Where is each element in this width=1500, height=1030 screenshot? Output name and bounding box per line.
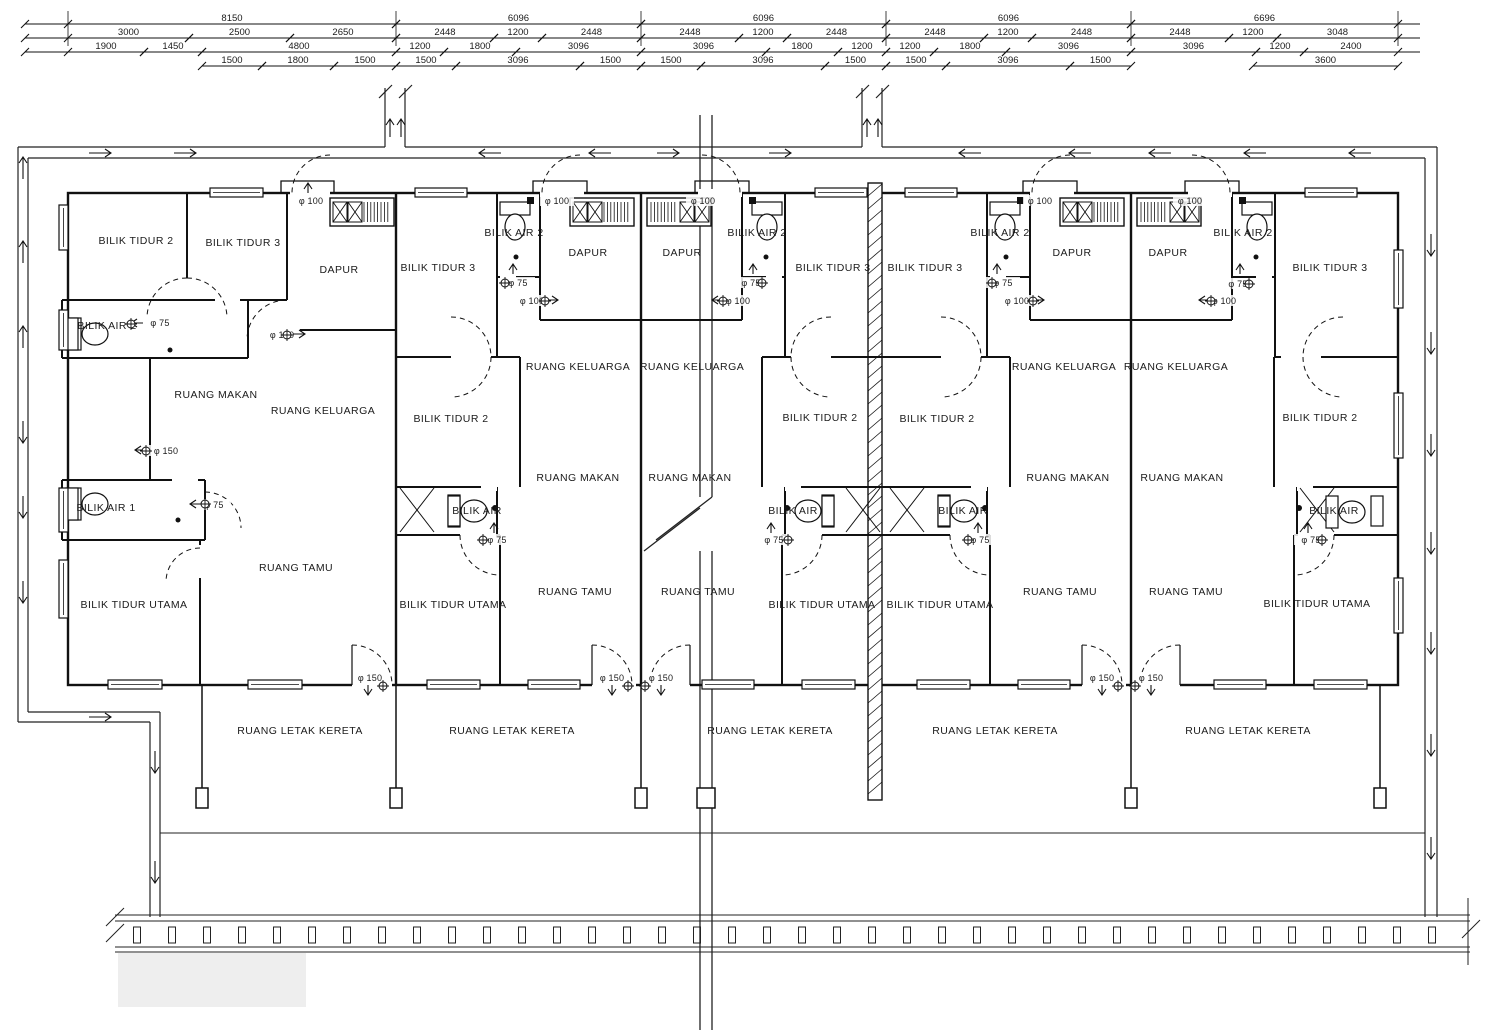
flow-arrow [1244, 149, 1266, 157]
flow-arrow [1069, 149, 1091, 157]
room-label: RUANG MAKAN [536, 472, 619, 484]
floor-plan-drawing: 8150609660966096669630002500265024481200… [0, 0, 1500, 1030]
dimension-label: 1200 [997, 27, 1018, 38]
room-label: DAPUR [1052, 247, 1091, 259]
flow-arrow [1427, 434, 1435, 456]
dimension-label: 1200 [1242, 27, 1263, 38]
dimension-label: 2448 [826, 27, 847, 38]
carpark-label: RUANG LETAK KERETA [237, 725, 363, 737]
scan-watermark-block [118, 953, 306, 1007]
pipe-size-label: φ 100 [545, 196, 569, 206]
room-label: BILIK TIDUR 3 [400, 262, 475, 274]
flow-arrow [174, 149, 196, 157]
room-label: BILIK TIDUR 2 [782, 412, 857, 424]
dimension-label: 1800 [469, 41, 490, 52]
terrace-outer-walls [68, 193, 1398, 685]
flow-arrow [1427, 837, 1435, 859]
dimension-strip: 8150609660966096669630002500265024481200… [21, 11, 1420, 70]
room-label: BILIK AIR 2 [727, 227, 786, 239]
room-label: BILIK AIR [1309, 505, 1359, 517]
hatched-party-wall [868, 183, 882, 800]
pipe-size-label: φ 100 [1028, 196, 1052, 206]
dimension-label: 1200 [899, 41, 920, 52]
dimension-label: 6096 [508, 13, 529, 24]
dimension-label: 8150 [221, 13, 242, 24]
flow-arrow [863, 119, 871, 137]
dimension-label: 6096 [998, 13, 1019, 24]
dimension-label: 4800 [288, 41, 309, 52]
pipe-size-label: φ 100 [299, 196, 323, 206]
flow-arrow [1349, 149, 1371, 157]
flow-arrow [959, 149, 981, 157]
room-label: DAPUR [319, 264, 358, 276]
carpark-label: RUANG LETAK KERETA [1185, 725, 1311, 737]
room-label: DAPUR [662, 247, 701, 259]
dimension-label: 3096 [693, 41, 714, 52]
pipe-size-label: φ 100 [691, 196, 715, 206]
room-label: BILIK AIR 1 [76, 502, 135, 514]
room-label: BILIK TIDUR UTAMA [399, 599, 506, 611]
dimension-label: 1450 [162, 41, 183, 52]
front-fence [106, 833, 1480, 965]
dimension-label: 1500 [221, 55, 242, 66]
room-label: BILIK TIDUR 2 [413, 413, 488, 425]
room-label: RUANG TAMU [538, 586, 612, 598]
dimension-label: 2448 [924, 27, 945, 38]
pipe-size-label: φ 100 [1005, 296, 1029, 306]
flow-arrow [386, 119, 394, 137]
pipe-size-label: φ 150 [1139, 673, 1163, 683]
flow-arrow [1427, 532, 1435, 554]
pipe-size-label: φ 150 [649, 673, 673, 683]
room-label: BILIK TIDUR 3 [205, 237, 280, 249]
room-label: BILIK TIDUR UTAMA [886, 599, 993, 611]
dimension-label: 3000 [118, 27, 139, 38]
dimension-label: 1500 [905, 55, 926, 66]
flow-arrow [993, 264, 1001, 274]
dimension-label: 1500 [415, 55, 436, 66]
room-label: BILIK TIDUR 2 [899, 413, 974, 425]
room-label: DAPUR [1148, 247, 1187, 259]
flow-arrow [19, 421, 27, 443]
carpark-label: RUANG LETAK KERETA [449, 725, 575, 737]
room-label: BILIK TIDUR UTAMA [768, 599, 875, 611]
pipe-points [125, 277, 1328, 692]
dimension-label: 1500 [845, 55, 866, 66]
dimension-label: 3096 [997, 55, 1018, 66]
flow-arrow [151, 861, 159, 883]
pipe-size-label: φ 150 [358, 673, 382, 683]
flow-arrow [19, 581, 27, 603]
dimension-label: 1200 [752, 27, 773, 38]
room-label: RUANG KELUARGA [271, 405, 375, 417]
pipe-size-label: φ 75 [508, 278, 527, 288]
dimension-label: 1500 [660, 55, 681, 66]
dimension-label: 3048 [1327, 27, 1348, 38]
pipe-size-label: φ 100 [726, 296, 750, 306]
dimension-label: 2448 [1071, 27, 1092, 38]
flow-arrow [509, 264, 517, 274]
dimension-label: 2448 [679, 27, 700, 38]
dimension-label: 3096 [1183, 41, 1204, 52]
dimension-label: 3096 [507, 55, 528, 66]
dimension-label: 1200 [1269, 41, 1290, 52]
room-label: BILIK AIR [768, 505, 818, 517]
room-label: BILIK AIR 2 [1213, 227, 1272, 239]
flow-arrow [89, 149, 111, 157]
flow-arrow [1149, 149, 1171, 157]
floor-plan-canvas: 8150609660966096669630002500265024481200… [0, 0, 1500, 1030]
dimension-label: 2650 [332, 27, 353, 38]
dimension-label: 6696 [1254, 13, 1275, 24]
dimension-label: 1500 [354, 55, 375, 66]
pipe-size-label: φ 75 [150, 318, 169, 328]
dimension-label: 3600 [1315, 55, 1336, 66]
room-label: BILIK TIDUR 3 [1292, 262, 1367, 274]
flow-arrow [1427, 332, 1435, 354]
pipe-size-label: φ 75 [487, 535, 506, 545]
room-label: RUANG TAMU [1023, 586, 1097, 598]
room-label: BILIK AIR [938, 505, 988, 517]
dimension-label: 1800 [791, 41, 812, 52]
car-porch-structure [196, 685, 1386, 808]
room-label: RUANG KELUARGA [526, 361, 630, 373]
dimension-label: 2400 [1340, 41, 1361, 52]
flow-arrow [479, 149, 501, 157]
pipe-size-label: φ 150 [1090, 673, 1114, 683]
room-label: BILIK TIDUR 2 [1282, 412, 1357, 424]
room-label: BILIK AIR [452, 505, 502, 517]
dimension-label: 3096 [1058, 41, 1079, 52]
dimension-label: 2500 [229, 27, 250, 38]
dimension-label: 1800 [287, 55, 308, 66]
flow-arrow [151, 751, 159, 773]
flow-arrow [19, 496, 27, 518]
room-label: RUANG TAMU [259, 562, 333, 574]
flow-arrow [1427, 734, 1435, 756]
room-label: BILIK AIR 2 [484, 227, 543, 239]
pipe-size-label: φ 100 [1178, 196, 1202, 206]
flow-arrow [19, 157, 27, 179]
dimension-label: 2448 [581, 27, 602, 38]
room-label: RUANG MAKAN [1026, 472, 1109, 484]
room-label: BILIK TIDUR 2 [98, 235, 173, 247]
room-label: RUANG TAMU [1149, 586, 1223, 598]
dimension-label: 2448 [434, 27, 455, 38]
room-label: RUANG TAMU [661, 586, 735, 598]
flow-arrow [874, 119, 882, 137]
dimension-label: 1900 [95, 41, 116, 52]
room-label: BILIK TIDUR 3 [795, 262, 870, 274]
flow-arrow [589, 149, 611, 157]
flow-arrow [19, 326, 27, 348]
dimension-label: 6096 [753, 13, 774, 24]
dimension-label: 1500 [1090, 55, 1111, 66]
flow-arrow [397, 119, 405, 137]
room-label: BILIK AIR 2 [970, 227, 1029, 239]
dimension-label: 3096 [752, 55, 773, 66]
pipe-size-label: φ 75 [764, 535, 783, 545]
carpark-label: RUANG LETAK KERETA [707, 725, 833, 737]
room-label: BILIK TIDUR UTAMA [1263, 598, 1370, 610]
room-label: BILIK TIDUR UTAMA [80, 599, 187, 611]
flow-arrow [1427, 234, 1435, 256]
room-label: RUANG KELUARGA [1124, 361, 1228, 373]
flow-arrow [89, 713, 111, 721]
room-label: BILIK TIDUR 3 [887, 262, 962, 274]
dimension-label: 1200 [409, 41, 430, 52]
pipe-size-label: φ 150 [600, 673, 624, 683]
room-label: RUANG KELUARGA [1012, 361, 1116, 373]
carpark-label: RUANG LETAK KERETA [932, 725, 1058, 737]
room-label: RUANG MAKAN [174, 389, 257, 401]
flow-arrow [749, 264, 757, 274]
flow-arrow [1236, 264, 1244, 274]
flow-arrow [19, 241, 27, 263]
room-label: RUANG KELUARGA [640, 361, 744, 373]
dimension-label: 2448 [1169, 27, 1190, 38]
pipe-size-label: φ 150 [154, 446, 178, 456]
flow-arrow [767, 523, 775, 533]
flow-arrow [769, 149, 791, 157]
room-label: RUANG MAKAN [648, 472, 731, 484]
dimension-label: 1800 [959, 41, 980, 52]
flow-arrow [657, 149, 679, 157]
dimension-label: 1500 [600, 55, 621, 66]
dimension-label: 1200 [507, 27, 528, 38]
room-label: RUANG MAKAN [1140, 472, 1223, 484]
dimension-label: 1200 [851, 41, 872, 52]
room-label: DAPUR [568, 247, 607, 259]
flow-arrow [1427, 632, 1435, 654]
dimension-label: 3096 [568, 41, 589, 52]
